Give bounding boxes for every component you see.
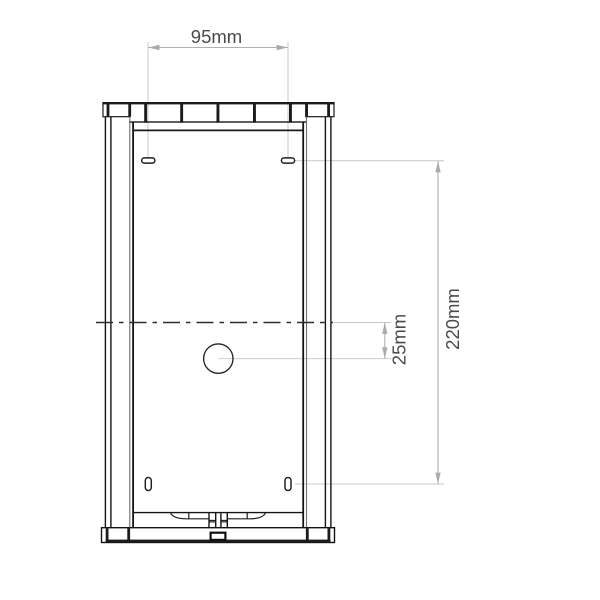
svg-text:25mm: 25mm: [388, 314, 409, 365]
svg-text:95mm: 95mm: [191, 26, 242, 47]
svg-text:220mm: 220mm: [442, 288, 463, 350]
